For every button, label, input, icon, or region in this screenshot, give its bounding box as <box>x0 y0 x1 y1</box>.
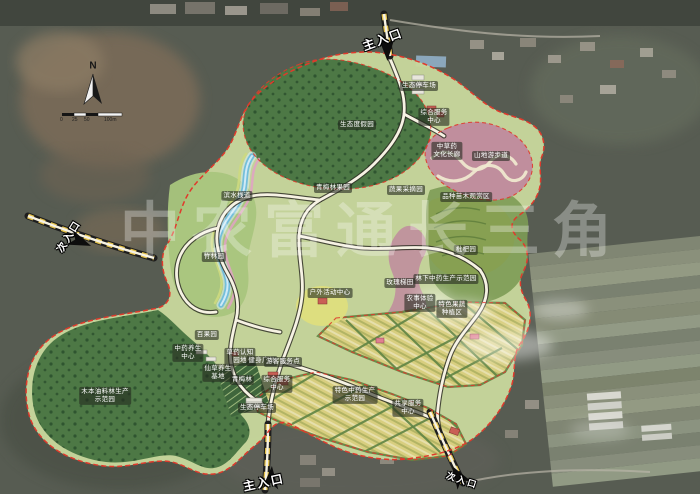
map-label: 特色果蔬 种植区 <box>436 300 467 318</box>
map-label: 青梅林 <box>230 375 254 385</box>
labels-layer: 主入口次入口主入口次入口生态停车场综合服务 中心生态度假园中草药 文化长廊山地游… <box>0 0 700 494</box>
map-label: 竹林园 <box>202 252 226 262</box>
map-label: 玫瑰梯田 <box>384 278 415 288</box>
map-label: 生态度假园 <box>338 120 376 130</box>
map-label: 中药养生 中心 <box>172 344 203 362</box>
entrance-label-secondary-southeast: 次入口 <box>445 471 480 492</box>
map-label: 户外活动中心 <box>308 288 353 298</box>
map-label: 中草药 文化长廊 <box>431 142 462 160</box>
map-label: 综合服务 中心 <box>418 108 449 126</box>
entrance-label-secondary-west: 次入口 <box>55 218 85 255</box>
map-label: 特色中药生产 示范园 <box>333 386 378 404</box>
scale-label-100m: 100m <box>104 117 117 123</box>
map-label: 蔬果采摘园 <box>387 185 425 195</box>
map-label: 木本油料林生产 示范园 <box>79 387 131 405</box>
scale-label-50: 50 <box>84 117 90 123</box>
map-label: 游客服务点 <box>264 357 302 367</box>
map-label: 生态停车场 <box>400 81 438 91</box>
map-label: 百果园 <box>195 330 219 340</box>
map-label: 生态停车场 <box>238 403 276 413</box>
map-label: 共享服务 中心 <box>392 399 423 417</box>
map-label: 山地游步道 <box>472 151 510 161</box>
map-label: 滨水栈道 <box>221 191 252 201</box>
map-label: 林下中药生产示范园 <box>413 274 478 284</box>
scale-label-25: 25 <box>72 117 78 123</box>
scale-label-0: 0 <box>60 117 63 123</box>
compass-north-label: N <box>89 61 96 72</box>
map-label: 青梅林果园 <box>314 183 352 193</box>
map-label: 农事体验 中心 <box>404 294 435 312</box>
map-label: 枇杷园 <box>454 245 478 255</box>
map-label: 综合服务 中心 <box>261 375 292 393</box>
entrance-label-main-north: 主入口 <box>361 26 406 54</box>
map-label: 品种苗木观赏区 <box>440 192 492 202</box>
entrance-label-main-south: 主入口 <box>242 471 286 494</box>
planning-map: 主入口次入口主入口次入口生态停车场综合服务 中心生态度假园中草药 文化长廊山地游… <box>0 0 700 494</box>
